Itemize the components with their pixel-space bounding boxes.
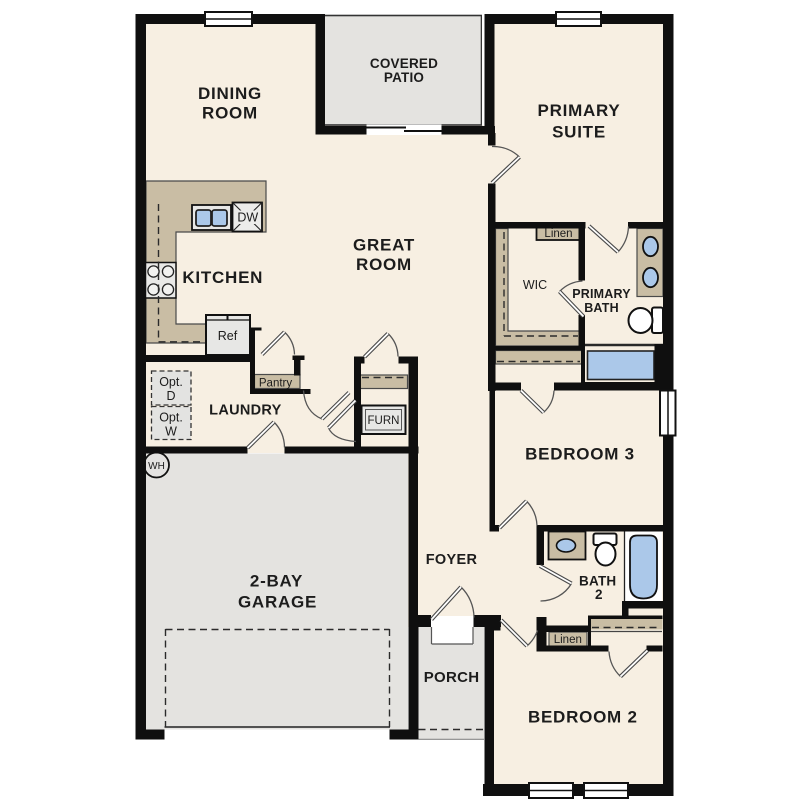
svg-text:Linen: Linen [544, 228, 572, 240]
svg-text:BEDROOM 3: BEDROOM 3 [525, 445, 635, 464]
svg-text:WH: WH [148, 461, 165, 472]
svg-text:KITCHEN: KITCHEN [182, 268, 263, 287]
svg-text:PRIMARY: PRIMARY [572, 287, 631, 301]
svg-text:FOYER: FOYER [426, 552, 478, 568]
svg-text:ROOM: ROOM [202, 104, 258, 123]
svg-text:D: D [166, 389, 175, 403]
svg-text:BEDROOM 2: BEDROOM 2 [528, 707, 638, 726]
svg-text:PRIMARY: PRIMARY [537, 101, 620, 120]
svg-text:COVERED: COVERED [370, 56, 438, 71]
svg-text:GARAGE: GARAGE [238, 593, 317, 612]
svg-text:2-BAY: 2-BAY [250, 572, 303, 591]
svg-text:Opt.: Opt. [159, 375, 183, 389]
svg-text:FURN: FURN [368, 415, 400, 427]
svg-text:GREAT: GREAT [353, 235, 415, 254]
svg-text:ROOM: ROOM [356, 255, 412, 274]
svg-text:W: W [165, 425, 177, 439]
svg-text:PATIO: PATIO [384, 70, 424, 85]
svg-text:LAUNDRY: LAUNDRY [209, 402, 281, 418]
svg-text:2: 2 [595, 587, 603, 602]
svg-text:DINING: DINING [198, 84, 262, 103]
svg-text:Pantry: Pantry [259, 378, 292, 390]
svg-text:WIC: WIC [523, 278, 547, 292]
svg-text:BATH: BATH [584, 301, 619, 315]
svg-text:Ref: Ref [218, 329, 238, 343]
svg-text:SUITE: SUITE [552, 122, 606, 141]
svg-text:DW: DW [237, 211, 258, 225]
svg-text:Linen: Linen [554, 634, 582, 646]
svg-text:PORCH: PORCH [424, 669, 480, 686]
svg-text:Opt.: Opt. [159, 411, 183, 425]
